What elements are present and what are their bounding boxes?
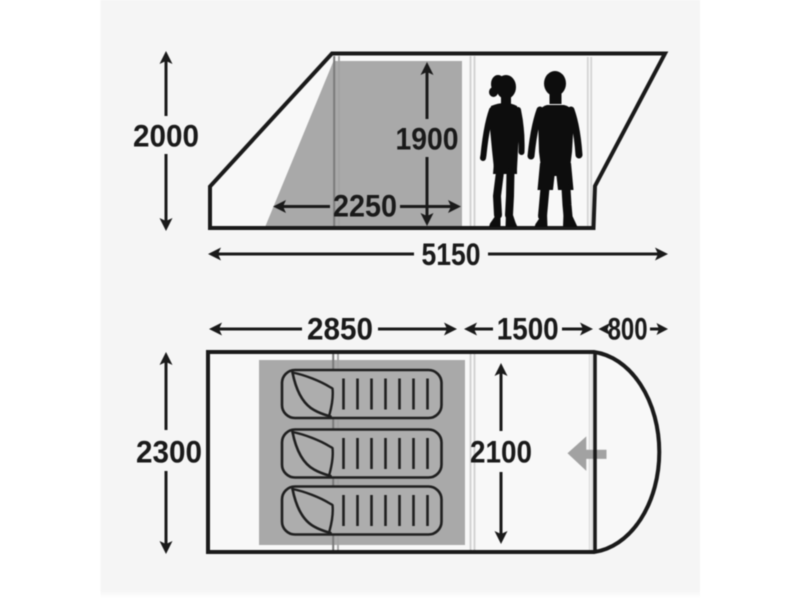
svg-text:5150: 5150 bbox=[422, 236, 481, 272]
svg-text:800: 800 bbox=[608, 311, 648, 347]
svg-text:1500: 1500 bbox=[497, 311, 559, 347]
svg-text:2250: 2250 bbox=[333, 188, 397, 224]
svg-text:2100: 2100 bbox=[470, 434, 532, 470]
svg-text:2300: 2300 bbox=[136, 434, 202, 470]
svg-text:2850: 2850 bbox=[307, 311, 373, 347]
svg-text:2000: 2000 bbox=[133, 118, 199, 154]
svg-text:1900: 1900 bbox=[396, 121, 459, 157]
